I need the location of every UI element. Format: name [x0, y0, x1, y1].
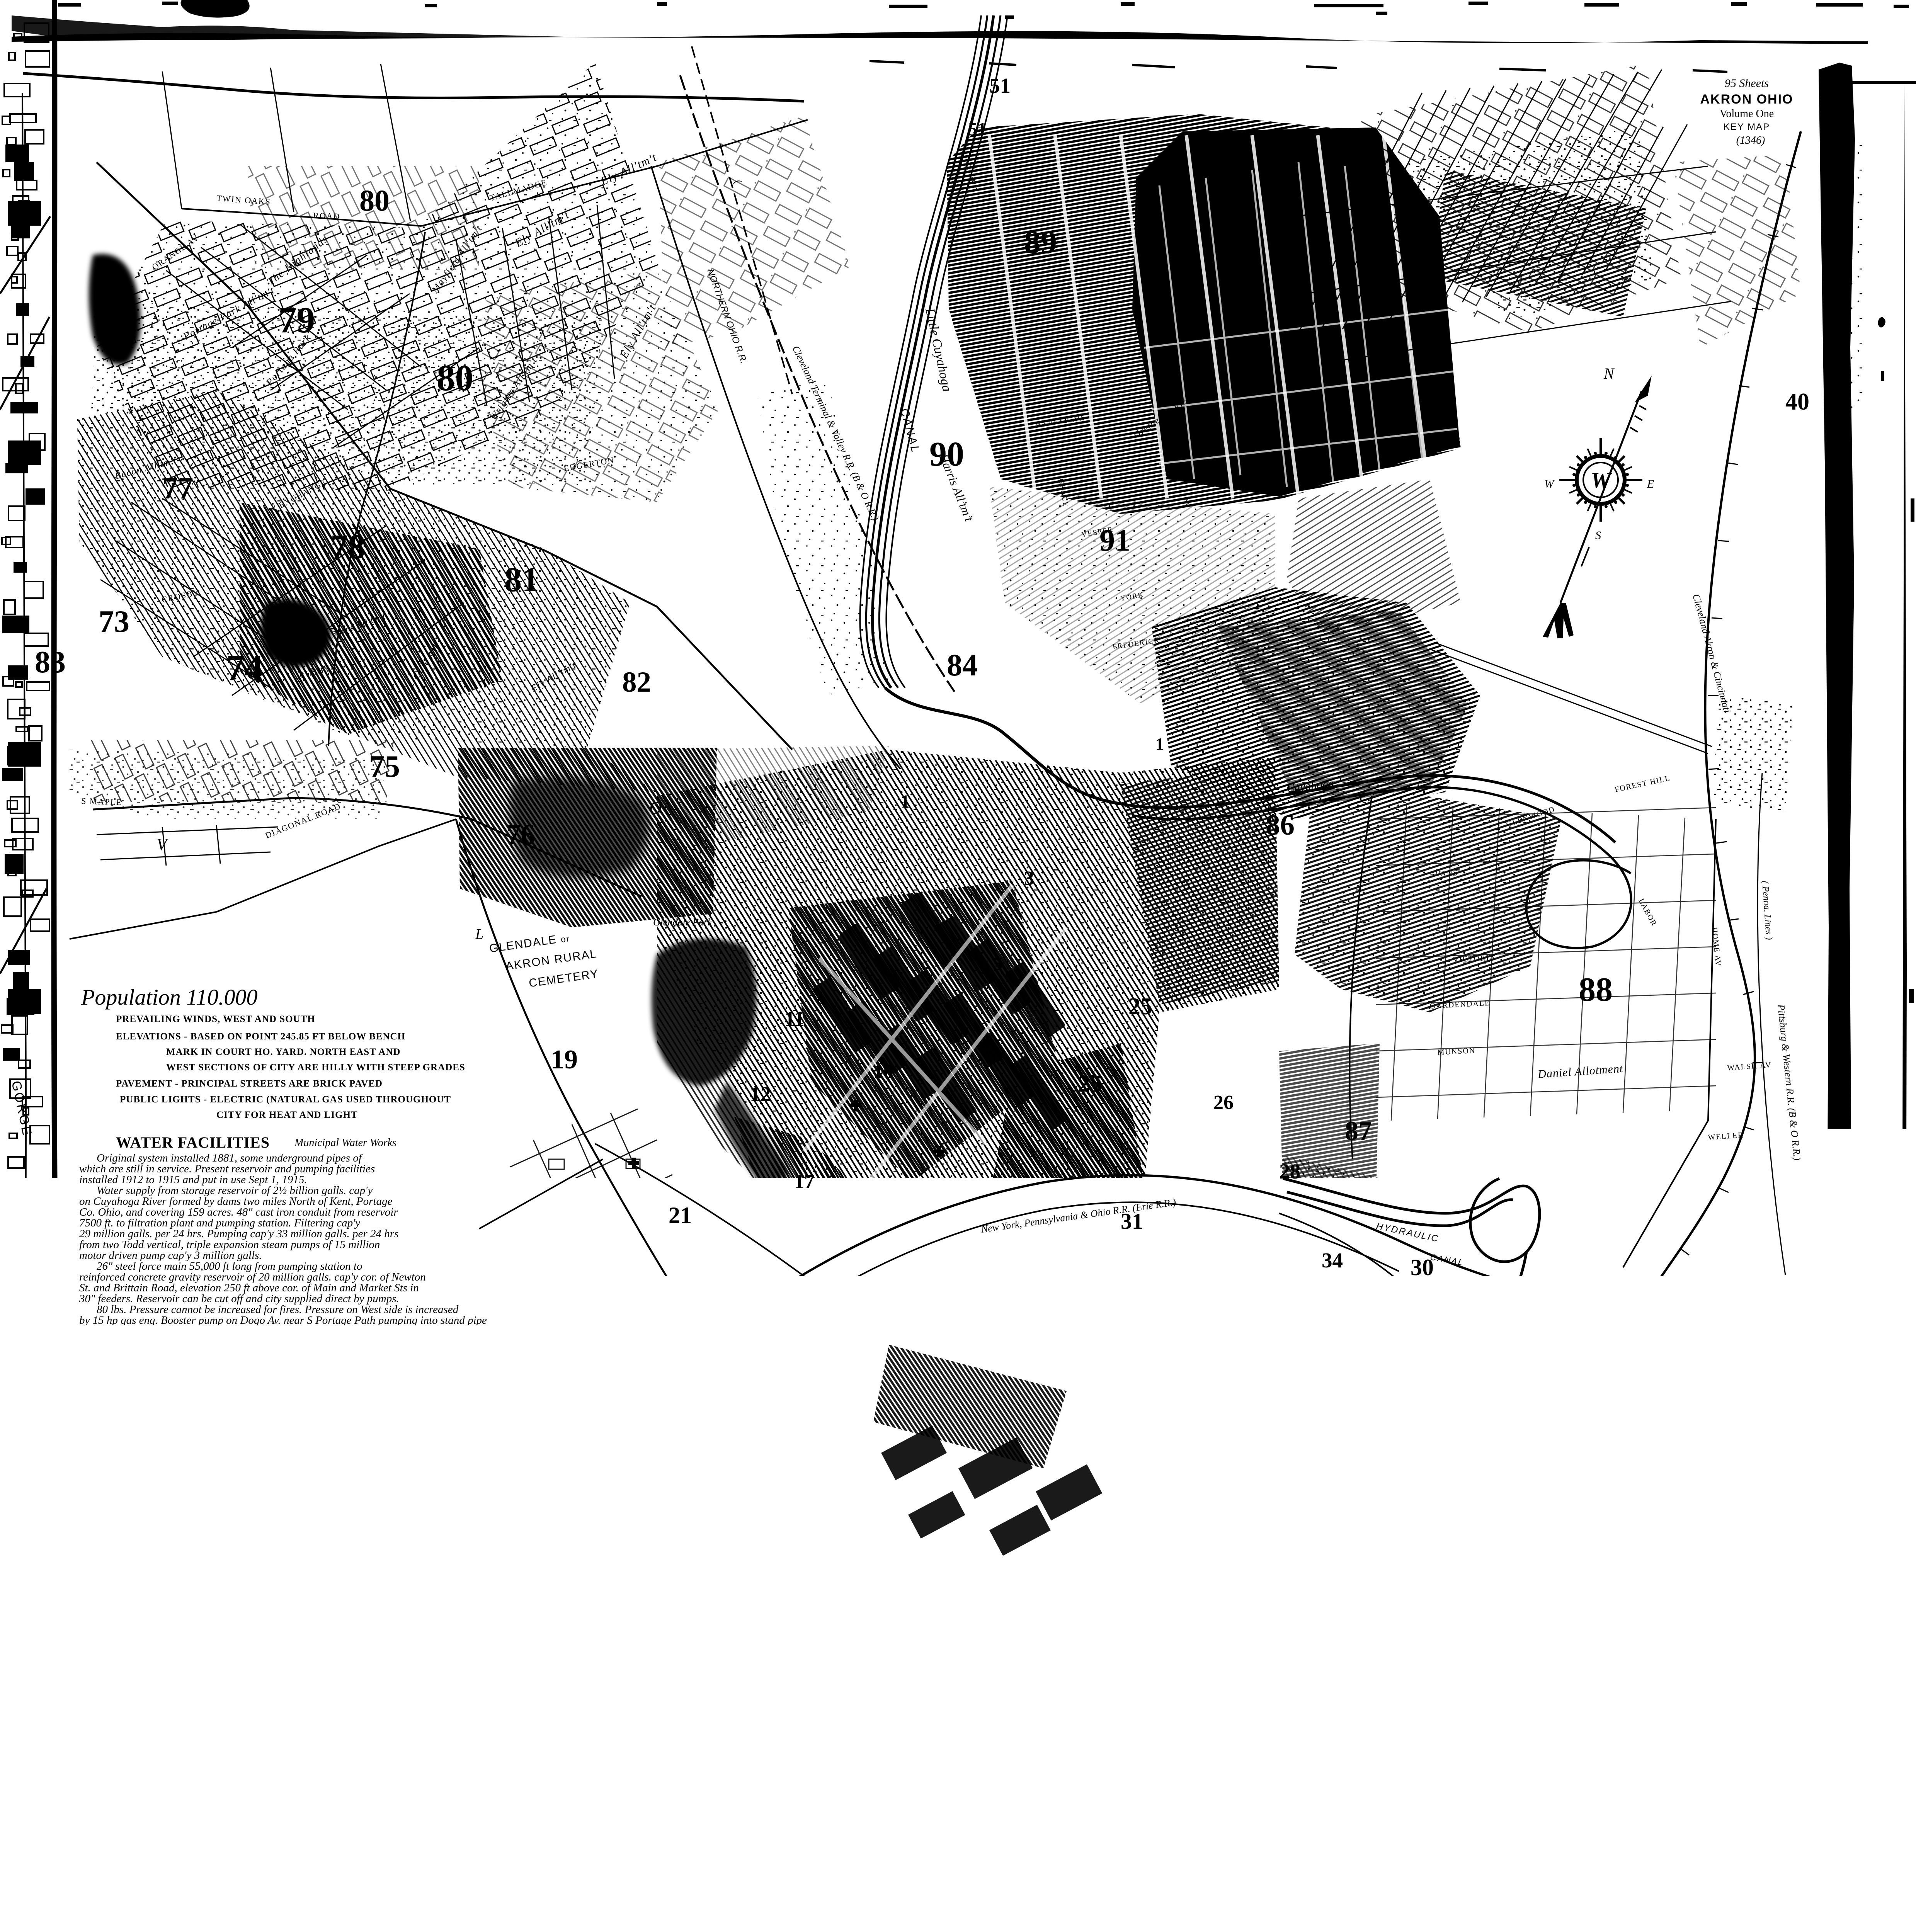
- svg-text:10: 10: [873, 1061, 893, 1083]
- svg-text:Brick and frame ..: Brick and frame ..: [232, 1771, 319, 1785]
- svg-text:.. .. with fire escape.: .. .. with fire escape.: [580, 1900, 673, 1913]
- svg-text:TRIPLE: TRIPLE: [616, 1875, 633, 1881]
- svg-text:D GLASS: D GLASS: [141, 1911, 161, 1916]
- svg-text:HORIZONTAL: HORIZONTAL: [553, 1797, 585, 1803]
- svg-text:81: 81: [504, 561, 539, 599]
- svg-text:(C.B.): (C.B.): [131, 1631, 146, 1637]
- svg-text:84: 84: [947, 648, 978, 682]
- svg-text:PREVAILING WINDS, WEST AND SOU: PREVAILING WINDS, WEST AND SOUTH: [116, 1014, 315, 1024]
- svg-text:FIRE ALARM: FIRE ALARM: [123, 1497, 195, 1510]
- svg-text:.. 18 ..: .. 18 ..: [263, 1892, 293, 1905]
- svg-text:N: N: [1603, 365, 1615, 382]
- svg-text:Municipal Water Works: Municipal Water Works: [294, 1137, 396, 1149]
- svg-text:28: 28: [1279, 1160, 1300, 1183]
- svg-text:Chimneys: Chimneys: [603, 1813, 648, 1826]
- svg-text:95 Sheets: 95 Sheets: [1725, 77, 1769, 90]
- svg-text:19: 19: [551, 1045, 578, 1075]
- svg-text:Elevators: Elevators: [618, 1657, 663, 1670]
- svg-text:11: 11: [784, 1007, 805, 1031]
- svg-text:734 miles of water pipes in th: 734 miles of water pipes in the distribu…: [79, 1357, 373, 1370]
- svg-text:orrected to: orrected to: [908, 1720, 1024, 1752]
- svg-text:Automatic sprinklers.: Automatic sprinklers.: [560, 1930, 660, 1932]
- svg-text:Fire escape.: Fire escape.: [560, 1915, 617, 1928]
- svg-text:Eight stations, 92 men. Equipm: Eight stations, 92 men. Equipment all mo…: [274, 1385, 461, 1396]
- svg-text:W: W: [1591, 468, 1612, 493]
- svg-text:TOP STORY ONLY: TOP STORY ONLY: [141, 1878, 179, 1884]
- svg-text:(1346): (1346): [1736, 134, 1765, 146]
- svg-text:BE: BE: [531, 1779, 541, 1787]
- svg-text:55: 55: [1001, 1496, 1022, 1519]
- svg-text:Fire wall 6 inches above roof: Fire wall 6 inches above roof.: [231, 1860, 375, 1874]
- svg-text:89: 89: [1024, 224, 1057, 260]
- svg-text:WATER FACILITIES: WATER FACILITIES: [116, 1134, 270, 1151]
- svg-text:FIRE DEPARTMENT: FIRE DEPARTMENT: [116, 1381, 271, 1398]
- svg-text:FE: FE: [531, 1678, 541, 1687]
- svg-text:Steam boilers: Steam boilers: [642, 1794, 705, 1806]
- svg-text:.. 36 ..: .. 36 ..: [263, 1907, 293, 1921]
- svg-text:.. .. self closing traps: .. .. self closing traps.: [560, 1716, 660, 1728]
- svg-text:83: 83: [35, 645, 66, 679]
- svg-text:ROOF: ROOF: [131, 1768, 147, 1774]
- svg-text:77: 77: [162, 471, 193, 505]
- svg-text:FT: FT: [531, 1698, 541, 1707]
- svg-text:E: E: [532, 1658, 538, 1668]
- svg-text:Mound concrete or cement block: Mound concrete or cement block construct…: [231, 1631, 455, 1644]
- svg-text:IRON: IRON: [578, 1817, 590, 1823]
- svg-text:hose supply wagons - 7450 ft.: hose supply wagons - 7450 ft. 2½ʺ cotton…: [79, 1472, 444, 1484]
- svg-text:- Gamewell and 59 Loomis elect: - Gamewell and 59 Loomis electric fire a…: [201, 1498, 572, 1509]
- svg-text:D = DWELLING: D = DWELLING: [131, 1808, 172, 1815]
- svg-text:Hoistways: Hoistways: [618, 1635, 667, 1648]
- svg-text:17: 17: [794, 1171, 814, 1193]
- svg-text:73: 73: [99, 605, 129, 639]
- svg-text:PAVEMENT - PRINCIPAL STREETS A: PAVEMENT - PRINCIPAL STREETS ARE BRICK P…: [116, 1078, 383, 1089]
- svg-text:ELEVATIONS - BASED ON POINT 24: ELEVATIONS - BASED ON POINT 245.85 FT BE…: [116, 1031, 405, 1042]
- svg-text:H: H: [532, 1637, 539, 1647]
- svg-text:E: E: [1647, 478, 1654, 490]
- svg-text:PUBLIC LIGHTS - ELECTRIC (NATU: PUBLIC LIGHTS - ELECTRIC (NATURAL GAS US…: [120, 1094, 451, 1105]
- svg-text:MARK IN COURT HO. YARD. NORTH: MARK IN COURT HO. YARD. NORTH EAST AND: [166, 1047, 400, 1057]
- svg-text:FT: FT: [531, 1738, 541, 1747]
- svg-text:ESC: ESC: [531, 1759, 546, 1767]
- svg-text:Frame building: Frame building: [231, 1793, 307, 1806]
- svg-text:Stable: Stable: [618, 1610, 647, 1622]
- svg-text:Hydrants.: Hydrants.: [649, 1871, 695, 1884]
- svg-text:Volume One: Volume One: [1720, 108, 1774, 120]
- svg-text:One Knox ʺ ʺ 35 gall t: One Knox ʺ ʺ 35 gall tank: [97, 1436, 214, 1448]
- svg-text:82: 82: [622, 666, 651, 698]
- svg-text:SKYLIGHT LIGHTING: SKYLIGHT LIGHTING: [141, 1873, 188, 1878]
- svg-text:40: 40: [1785, 389, 1809, 415]
- svg-text:Water pipes and size in inches: Water pipes and size in inches: [603, 1852, 742, 1864]
- svg-text:NUMBER OF STORIES 4: NUMBER OF STORIES 4: [131, 1652, 194, 1658]
- svg-text:CITY FOR HEAT AND LIGHT: CITY FOR HEAT AND LIGHT: [216, 1110, 358, 1120]
- svg-text:.. .. self closing traps: .. .. self closing traps.: [560, 1756, 660, 1769]
- svg-text:76: 76: [506, 819, 535, 851]
- svg-text:25: 25: [1128, 993, 1152, 1020]
- svg-text:Frame enclosed elevator: Frame enclosed elevator: [560, 1675, 676, 1688]
- svg-text:80: 80: [359, 184, 390, 217]
- svg-text:W: W: [1544, 478, 1555, 490]
- svg-text:.. 12 ..: .. 12 ..: [263, 1876, 293, 1890]
- svg-text:IN FEET: IN FEET: [131, 1614, 153, 1621]
- svg-text:BRICK 1ST 2: BRICK 1ST 2: [131, 1787, 165, 1793]
- svg-text:SKYLIGHT LIGHTING: SKYLIGHT LIGHTING: [141, 1889, 188, 1895]
- svg-text:86: 86: [1266, 809, 1295, 841]
- svg-text:.. with traps: .. with traps: [560, 1696, 616, 1708]
- svg-text:78: 78: [330, 528, 365, 566]
- svg-text:75: 75: [369, 750, 400, 784]
- svg-text:HEIGHT OF BUILDING: HEIGHT OF BUILDING: [131, 1607, 191, 1613]
- svg-text:One Boyd ʺ ʺ ʺ H and: One Boyd ʺ ʺ ʺ H and L - 40 ʺ ʺ 165 ft o…: [97, 1424, 318, 1436]
- svg-text:SLATE OR METAL ROOF: SLATE OR METAL ROOF: [131, 1716, 196, 1722]
- svg-text:ENG: ENG: [529, 1832, 546, 1840]
- svg-text:ESC: ESC: [531, 1718, 546, 1727]
- svg-text:Brick .. traps: Brick .. traps: [560, 1736, 621, 1748]
- svg-text:STONE BB: STONE BB: [131, 1675, 159, 1682]
- svg-text:1: 1: [900, 791, 910, 812]
- svg-text:52: 52: [900, 1459, 924, 1485]
- svg-text:WEST SECTIONS OF CITY ARE HILL: WEST SECTIONS OF CITY ARE HILLY WITH STE…: [166, 1062, 465, 1073]
- svg-text:Sum: Sum: [1314, 1505, 1336, 1517]
- svg-text:6ʺ W. PIPE: 6ʺ W. PIPE: [541, 1850, 569, 1857]
- svg-text:BRICK BASEMENT BB: BRICK BASEMENT BB: [131, 1668, 191, 1674]
- svg-text:HT: HT: [568, 1637, 580, 1646]
- svg-text:KENZIE: KENZIE: [1545, 1522, 1578, 1532]
- svg-text:1: 1: [1155, 735, 1164, 753]
- svg-text:5: 5: [993, 954, 1002, 974]
- svg-text:VERTICAL: VERTICAL: [604, 1797, 628, 1803]
- svg-text:DOUBLE: DOUBLE: [577, 1875, 598, 1881]
- svg-text:HAZEL: HAZEL: [1507, 1492, 1536, 1501]
- svg-text:51: 51: [989, 74, 1011, 97]
- svg-text:56: 56: [1094, 1507, 1115, 1531]
- svg-text:87: 87: [1345, 1116, 1372, 1146]
- svg-text:KEY: KEY: [158, 1542, 272, 1597]
- svg-text:BRICK: BRICK: [540, 1817, 556, 1823]
- svg-text:69: 69: [1540, 1872, 1561, 1896]
- svg-text:FRAME PARTITION: FRAME PARTITION: [131, 1695, 182, 1701]
- svg-text:ROAD: ROAD: [313, 211, 340, 221]
- svg-text:80: 80: [437, 357, 473, 398]
- svg-text:3: 3: [1024, 867, 1034, 889]
- svg-text:frame side.: frame side.: [340, 1724, 393, 1738]
- svg-text:34: 34: [1322, 1248, 1343, 1272]
- svg-text:SHINGLE: SHINGLE: [131, 1760, 156, 1767]
- svg-text:Stone building: Stone building: [232, 1837, 301, 1850]
- svg-text:E: E: [568, 1658, 574, 1668]
- svg-text:S: S: [1595, 529, 1601, 542]
- svg-text:AKRON OHIO: AKRON OHIO: [1700, 92, 1793, 107]
- svg-text:Glendale Park: Glendale Park: [653, 917, 712, 928]
- svg-text:Engine and horse power in figu: Engine and horse power in figures: [560, 1832, 721, 1844]
- svg-text:THREE STORIES: THREE STORIES: [141, 1895, 176, 1900]
- svg-text:S MAPLE: S MAPLE: [81, 796, 123, 807]
- svg-text:F = FLAT: F = FLAT: [131, 1829, 155, 1835]
- svg-text:Fire proof construction.: Fire proof construction.: [231, 1606, 346, 1620]
- svg-text:BASEMENT B: BASEMENT B: [131, 1660, 168, 1666]
- svg-text:32: 32: [1179, 1285, 1203, 1311]
- svg-text:SINGLE: SINGLE: [539, 1875, 556, 1881]
- svg-text:S = STORE: S = STORE: [131, 1850, 159, 1856]
- svg-text:61: 61: [1273, 1530, 1300, 1560]
- svg-text:21: 21: [669, 1202, 692, 1228]
- svg-text:V.P.: V.P.: [539, 1894, 549, 1900]
- svg-text:.. .. wired glass door: .. .. wired glass door: [560, 1776, 655, 1789]
- svg-text:L: L: [475, 926, 484, 942]
- svg-text:Brick building with brick or m: Brick building with brick or metal corni…: [232, 1655, 437, 1669]
- svg-text:12: 12: [750, 1082, 771, 1106]
- svg-text:frame cornice.: frame cornice.: [340, 1679, 410, 1692]
- svg-text:43: 43: [935, 1301, 958, 1327]
- svg-text:51: 51: [968, 119, 987, 139]
- svg-text:40 HP: 40 HP: [529, 1842, 543, 1848]
- svg-text:Brick veneered building.: Brick veneered building.: [232, 1748, 349, 1762]
- svg-text:Population 110.000: Population 110.000: [81, 985, 257, 1010]
- svg-text:COMPOSITION ROOF: COMPOSITION ROOF: [131, 1737, 188, 1743]
- svg-text:One second size Metropolitan a: One second size Metropolitan and one sec…: [97, 1448, 454, 1460]
- svg-text:37: 37: [1374, 1321, 1399, 1349]
- svg-text:66: 66: [1380, 1656, 1412, 1692]
- svg-text:Figures 8,12,16,20 indicate th: Figures 8,12,16,20 indicate thickness of…: [226, 1923, 487, 1932]
- svg-text:26: 26: [1213, 1092, 1234, 1114]
- svg-text:41: 41: [808, 1357, 832, 1383]
- svg-text:stone front.: stone front.: [340, 1702, 394, 1715]
- svg-text:KENT: KENT: [1399, 1642, 1423, 1652]
- svg-text:One 65 ft and one 85 ft aerial: One 65 ft and one 85 ft aerial hook & la…: [97, 1460, 545, 1472]
- svg-text:79: 79: [278, 299, 315, 340]
- svg-text:Five Ahrens Fox ʺ ʺ ʺ: Five Ahrens Fox ʺ ʺ ʺ ʺ ʺ - 40 ʺ ʺ ʺ ʺ 9…: [79, 1412, 276, 1424]
- svg-text:One Webb triple combination ho: One Webb triple combination hose, chemic…: [97, 1400, 573, 1412]
- svg-text:O: O: [649, 798, 662, 817]
- svg-text:88: 88: [1579, 971, 1613, 1009]
- svg-text:74: 74: [226, 647, 263, 688]
- svg-text:59: 59: [1155, 1558, 1177, 1581]
- svg-text:18: 18: [730, 1283, 754, 1310]
- svg-text:V: V: [157, 835, 169, 854]
- svg-text:42: 42: [927, 1405, 951, 1431]
- svg-text:brick side.: brick side.: [325, 1814, 374, 1827]
- svg-text:25: 25: [1078, 1071, 1102, 1097]
- svg-text:KEY MAP: KEY MAP: [1724, 122, 1770, 132]
- svg-text:SKYLIGHT WITH WIRE: SKYLIGHT WITH WIRE: [141, 1905, 191, 1911]
- svg-text:C: C: [861, 1726, 900, 1790]
